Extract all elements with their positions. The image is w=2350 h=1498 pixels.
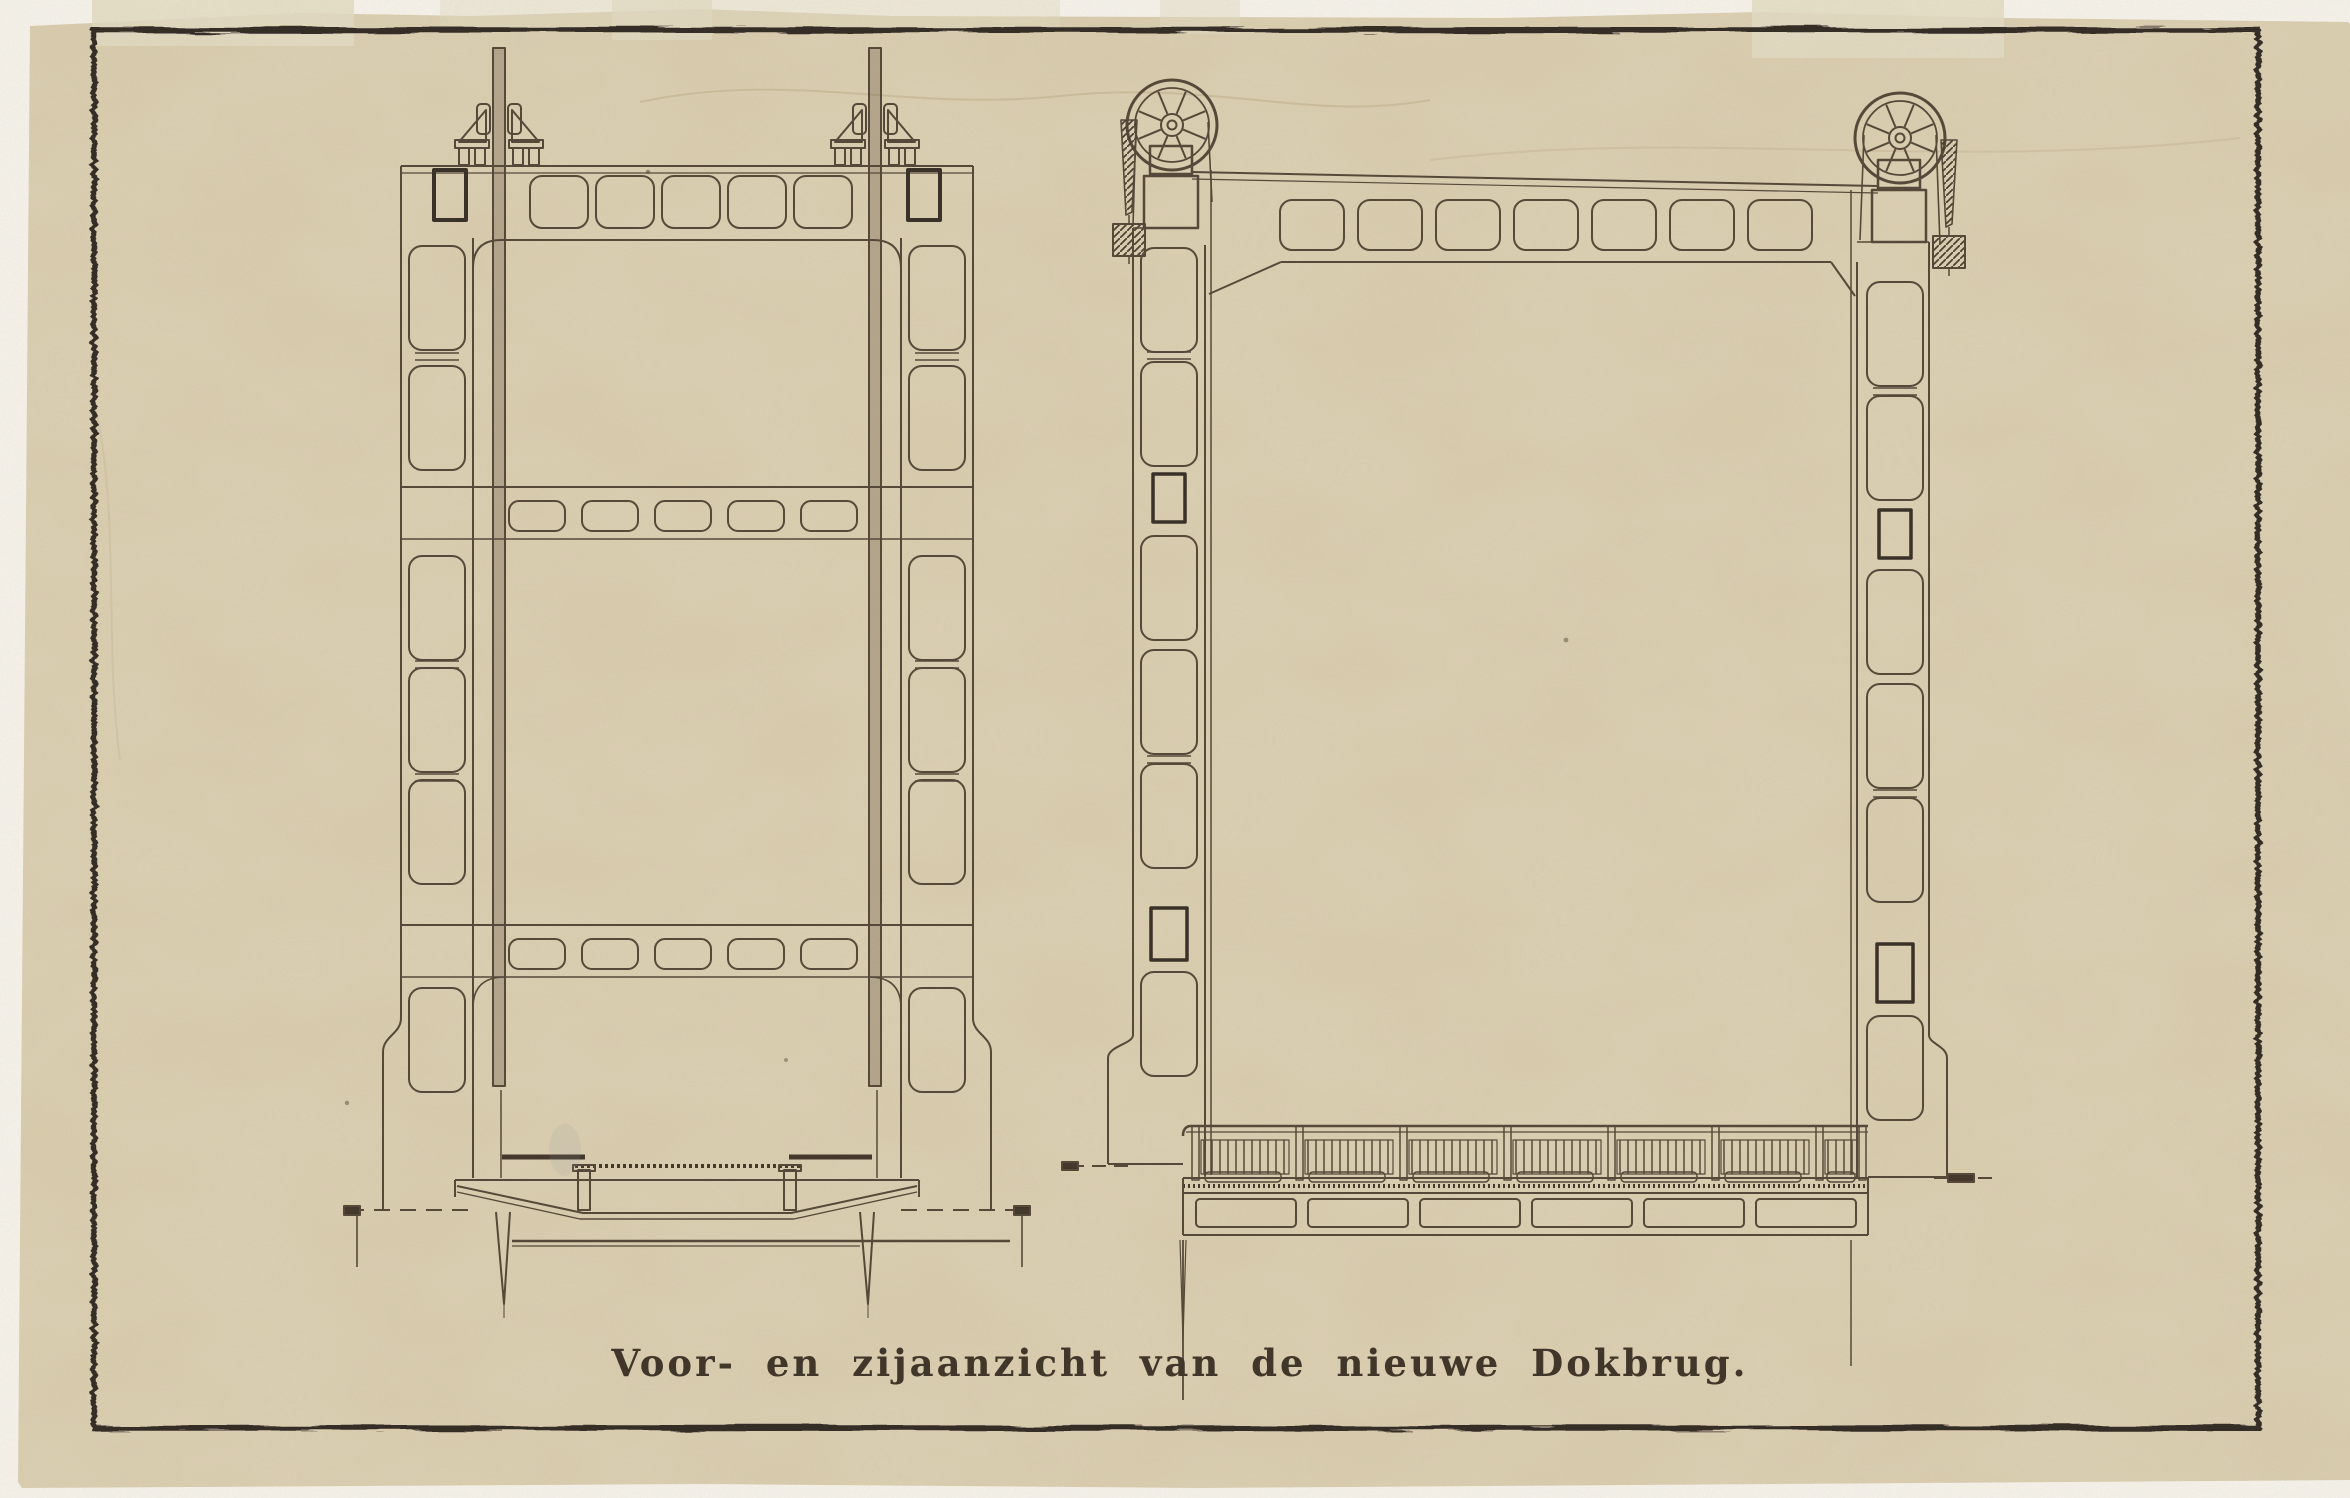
- figure-caption: Voor- en zijaanzicht van de nieuwe Dokbr…: [610, 1341, 1748, 1385]
- paper-grain: [18, 8, 2350, 1490]
- scanned-clipping-page: Voor- en zijaanzicht van de nieuwe Dokbr…: [0, 0, 2350, 1498]
- engraving-canvas: Voor- en zijaanzicht van de nieuwe Dokbr…: [0, 0, 2350, 1498]
